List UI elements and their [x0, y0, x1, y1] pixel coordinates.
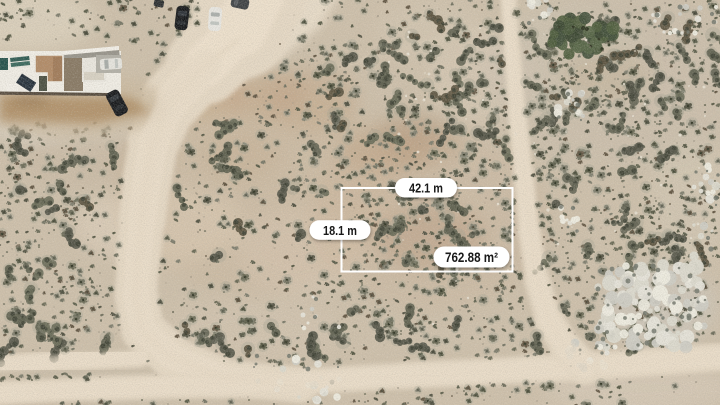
svg-text:42.1 m: 42.1 m — [409, 181, 443, 196]
svg-text:762.88 m²: 762.88 m² — [445, 249, 498, 265]
svg-text:18.1 m: 18.1 m — [323, 223, 357, 238]
